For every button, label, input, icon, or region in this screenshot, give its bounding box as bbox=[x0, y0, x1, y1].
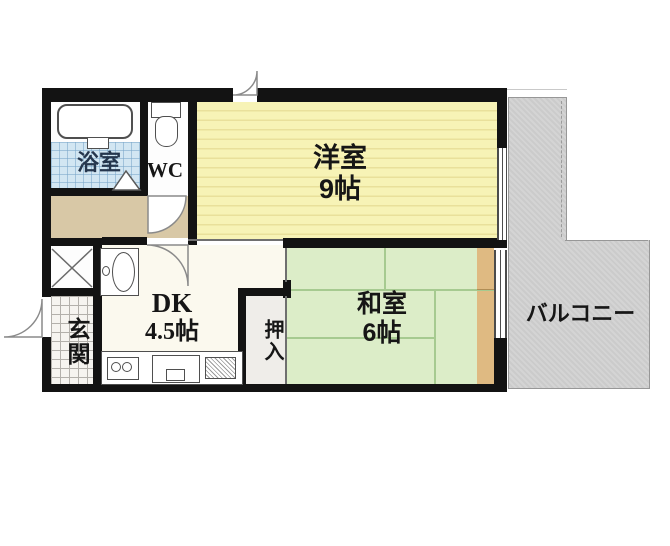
door-arc-western-entry bbox=[233, 71, 257, 95]
balcony-area bbox=[508, 97, 567, 241]
fusuma-closet bbox=[285, 296, 287, 384]
wall-top-right bbox=[257, 88, 507, 102]
window-line bbox=[497, 148, 499, 240]
sink-faucet-icon bbox=[166, 369, 185, 381]
wall-right-upper bbox=[497, 88, 507, 148]
exterior-hairline bbox=[507, 89, 567, 90]
window-line bbox=[506, 148, 508, 240]
bathroom-label: 浴室 bbox=[62, 150, 136, 175]
japanese-room-size: 6帖 bbox=[322, 319, 442, 348]
wall-hall-bottom bbox=[102, 237, 147, 245]
wall-right-lower bbox=[494, 338, 507, 388]
wall-western-left bbox=[188, 96, 197, 245]
window-line bbox=[502, 148, 504, 240]
wc-label: WC bbox=[144, 158, 186, 182]
balcony-edge bbox=[565, 240, 648, 241]
window-line bbox=[505, 250, 507, 338]
wall-bath-bottom bbox=[42, 188, 148, 196]
tatami-line bbox=[384, 248, 386, 290]
balcony-label: バルコニー bbox=[513, 301, 648, 326]
bath-step-icon bbox=[87, 137, 109, 149]
wall-top-left bbox=[42, 88, 233, 102]
entrance-label: 玄関 bbox=[58, 302, 90, 382]
closet-label: 押入 bbox=[249, 303, 283, 379]
fusuma-dk-japanese bbox=[285, 248, 287, 282]
dk-label: DK 4.5帖 bbox=[112, 288, 232, 347]
bathtub-icon bbox=[57, 104, 133, 139]
door-arc-entrance bbox=[4, 299, 42, 337]
wall-bottom bbox=[42, 384, 507, 392]
stove-burner-icon bbox=[122, 362, 132, 372]
window-line bbox=[494, 250, 496, 338]
western-room-label: 洋室 9帖 bbox=[280, 143, 400, 205]
laundry-space-floor bbox=[51, 246, 93, 288]
dk-size: 4.5帖 bbox=[112, 319, 232, 347]
dk-name: DK bbox=[112, 288, 232, 319]
wall-entrance-top bbox=[42, 288, 102, 296]
japanese-room-name: 和室 bbox=[322, 290, 442, 319]
partition-dk-western bbox=[188, 239, 283, 241]
stove-burner-icon bbox=[111, 362, 121, 372]
floorplan-canvas: 洋室 9帖 和室 6帖 DK 4.5帖 浴室 WC 玄関 押入 バルコニー bbox=[0, 0, 670, 546]
wall-western-japanese-divider bbox=[283, 238, 507, 248]
wood-strip-seam bbox=[477, 289, 494, 290]
window-line bbox=[500, 250, 502, 338]
washbasin-bowl-icon bbox=[112, 252, 135, 292]
washbasin-knob-icon bbox=[102, 266, 110, 276]
toilet-bowl-icon bbox=[155, 116, 178, 147]
balcony-divider-line bbox=[561, 101, 562, 237]
western-room-name: 洋室 bbox=[280, 143, 400, 174]
counter-hatch-icon bbox=[205, 357, 236, 379]
western-room-size: 9帖 bbox=[280, 174, 400, 205]
hallway-floor bbox=[51, 196, 188, 238]
wood-strip bbox=[477, 248, 494, 384]
japanese-room-label: 和室 6帖 bbox=[322, 290, 442, 348]
